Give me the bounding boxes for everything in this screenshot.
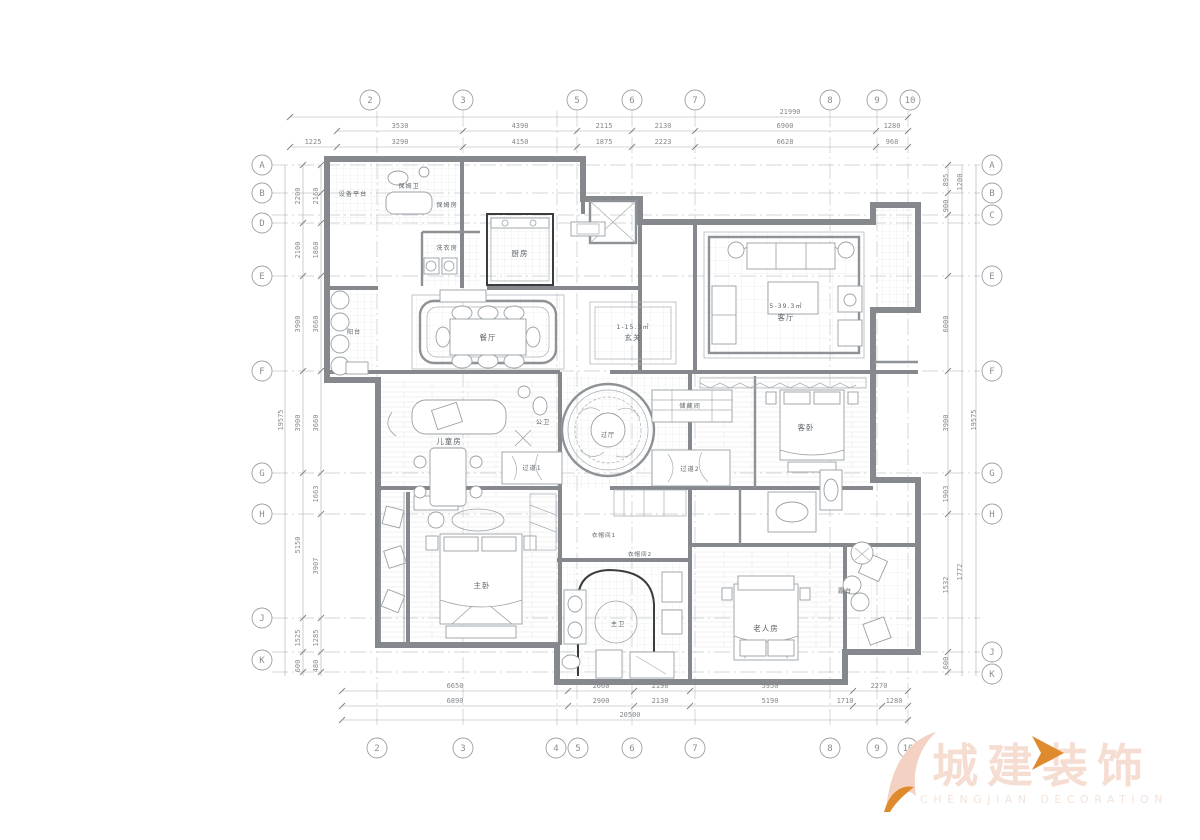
- dim: 4390: [512, 122, 529, 130]
- dim: 6900: [777, 122, 794, 130]
- dim: 1710: [837, 697, 854, 705]
- room-label-dining: 餐厅: [480, 333, 497, 342]
- dim: 2130: [652, 697, 669, 705]
- grid-bubble: 3: [460, 96, 465, 106]
- dim: 1200: [956, 174, 964, 191]
- dim-left-total: 19575: [277, 409, 285, 430]
- dim: 895: [942, 174, 950, 187]
- dim: 2270: [871, 682, 888, 690]
- dim: 1525: [294, 630, 302, 647]
- logo-english-text: CHENGJIAN DECORATION: [920, 793, 1168, 806]
- dim: 6000: [942, 316, 950, 333]
- dim: 5150: [294, 537, 302, 554]
- room-label-corridor2: 过道2: [680, 465, 699, 473]
- dim: 6628: [777, 138, 794, 146]
- floorplan-sheet: 21990 3530 4390 2115 2130 6900 1280 1225…: [0, 0, 1200, 840]
- room-label-hall: 过厅: [601, 431, 615, 439]
- grid-bubble: 9: [874, 96, 879, 106]
- dim: 3530: [392, 122, 409, 130]
- dim: 2115: [596, 122, 613, 130]
- dim: 1280: [884, 122, 901, 130]
- room-label-elder: 老人房: [753, 623, 779, 633]
- dim: 900: [942, 200, 950, 213]
- grid-bubble: 5: [574, 96, 579, 106]
- dim: 6890: [447, 697, 464, 705]
- grid-bubble: 8: [827, 744, 832, 754]
- dim: 600: [942, 657, 950, 670]
- room-label-master-bath: 主卫: [611, 620, 625, 628]
- grid-bubble: C: [989, 211, 994, 221]
- room-label-closet1: 衣帽间1: [592, 531, 616, 539]
- grid-bubble: E: [989, 272, 994, 282]
- dim: 3660: [312, 415, 320, 432]
- dim: 2100: [294, 242, 302, 259]
- room-label-storage: 储藏间: [679, 402, 701, 410]
- grid-bubble: 7: [692, 744, 697, 754]
- company-logo: 城建装饰 CHENGJIAN DECORATION: [884, 732, 1168, 812]
- dim: 1875: [596, 138, 613, 146]
- room-label-guest-bed: 客卧: [798, 422, 815, 432]
- room-label-balcony: 阳台: [347, 328, 361, 336]
- dim: 1285: [312, 630, 320, 647]
- grid-bubble: J: [259, 614, 264, 624]
- dim: 5950: [762, 682, 779, 690]
- dim: 1532: [942, 577, 950, 594]
- grid-bubble: G: [989, 469, 994, 479]
- dim-right-total: 19575: [970, 409, 978, 430]
- dim: 3900: [294, 316, 302, 333]
- grid-bubble: 2: [374, 744, 379, 754]
- dim: 3290: [392, 138, 409, 146]
- grid-bubble: H: [989, 510, 994, 520]
- room-label-foyer: 玄关: [625, 332, 642, 342]
- grid-bubble: 4: [553, 744, 558, 754]
- dim: 480: [312, 660, 320, 673]
- dim: 2223: [655, 138, 672, 146]
- dim: 3660: [312, 316, 320, 333]
- room-label-nanny-room: 保姆房: [436, 201, 458, 209]
- grid-bubble: F: [259, 367, 264, 377]
- dim: 2130: [655, 122, 672, 130]
- dim: 2900: [593, 697, 610, 705]
- grid-bubble: G: [259, 469, 264, 479]
- dim: 3900: [294, 415, 302, 432]
- floorplan-drawing: 21990 3530 4390 2115 2130 6900 1280 1225…: [0, 0, 1200, 840]
- room-label-master: 主卧: [474, 580, 491, 590]
- room-label-living: 客厅: [778, 312, 795, 322]
- dim: 600: [294, 660, 302, 673]
- dim: 1860: [312, 242, 320, 259]
- dim: 3907: [312, 558, 320, 575]
- dim: 5190: [762, 697, 779, 705]
- dim: 2200: [294, 188, 302, 205]
- dim: 968: [886, 138, 899, 146]
- grid-bubble: E: [259, 272, 264, 282]
- dim: 2160: [312, 188, 320, 205]
- grid-bubble: 2: [367, 96, 372, 106]
- grid-bubble: H: [259, 510, 264, 520]
- room-area-living: 5-39.3㎡: [769, 302, 802, 310]
- grid-bubble: 6: [629, 744, 634, 754]
- grid-bubble: F: [989, 367, 994, 377]
- dim-bottom-total: 20500: [619, 711, 640, 719]
- grid-bubble: 8: [827, 96, 832, 106]
- room-area-foyer: 1-15.3㎡: [616, 323, 649, 331]
- room-label-kitchen: 厨房: [512, 248, 529, 258]
- dim: 6650: [447, 682, 464, 690]
- grid-bubble: A: [989, 161, 995, 171]
- room-label-corridor1: 过道1: [522, 464, 541, 472]
- grid-bubble: 6: [629, 96, 634, 106]
- grid-bubble: K: [989, 670, 995, 680]
- dim: 2660: [593, 682, 610, 690]
- room-label-guest-bath: 公卫: [536, 419, 550, 426]
- room-label-equipment-platform: 设备平台: [339, 190, 368, 198]
- grid-bubble: 10: [905, 96, 916, 106]
- room-label-nanny-bath: 保姆卫: [398, 182, 420, 190]
- dim-top-total: 21990: [779, 108, 800, 116]
- dim: 1772: [956, 564, 964, 581]
- elder-bed: [722, 576, 810, 660]
- room-label-closet2: 衣帽间2: [628, 550, 652, 558]
- grid-bubble: 9: [874, 744, 879, 754]
- grid-bubble: 7: [692, 96, 697, 106]
- grid-bubble: B: [259, 189, 264, 199]
- dim: 1663: [312, 486, 320, 503]
- grid-bubble: 5: [575, 744, 580, 754]
- room-label-terrace: 露台: [838, 587, 852, 595]
- dim: 1225: [305, 138, 322, 146]
- dim: 1903: [942, 486, 950, 503]
- grid-bubble: A: [259, 161, 265, 171]
- grid-bubble: 3: [460, 744, 465, 754]
- grid-bubble: B: [989, 189, 994, 199]
- room-label-laundry: 洗衣房: [436, 244, 458, 252]
- dim: 1280: [886, 697, 903, 705]
- dim: 3900: [942, 415, 950, 432]
- grid-bubble: K: [259, 656, 265, 666]
- grid-bubble: J: [989, 648, 994, 658]
- grid-bubble: D: [259, 219, 264, 229]
- dim: 4150: [512, 138, 529, 146]
- room-label-kids: 儿童房: [436, 436, 462, 446]
- dim: 2190: [652, 682, 669, 690]
